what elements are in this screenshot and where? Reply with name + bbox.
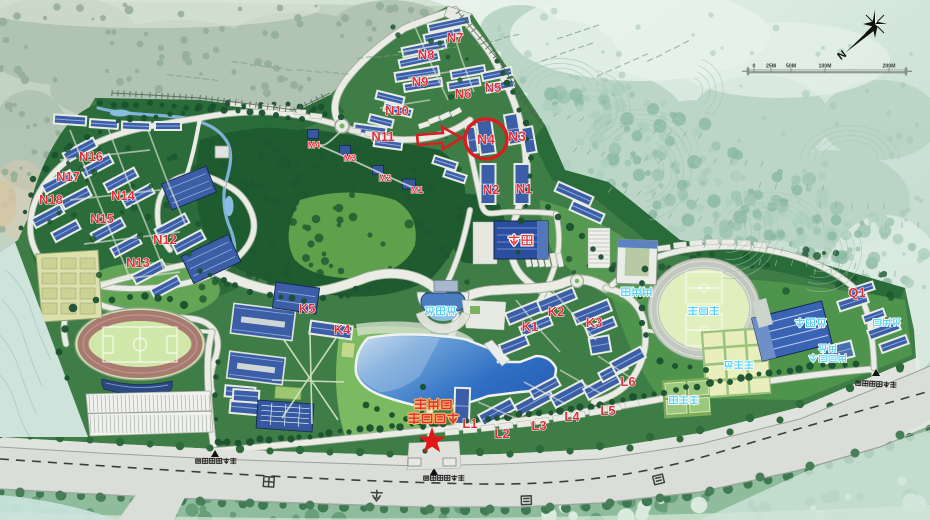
svg-text:L4: L4 (564, 409, 580, 424)
svg-text:N18: N18 (39, 192, 63, 207)
svg-text:K1: K1 (522, 319, 539, 334)
svg-text:N5: N5 (485, 80, 502, 95)
svg-text:N9: N9 (412, 74, 429, 89)
svg-text:K5: K5 (299, 301, 316, 316)
svg-text:N11: N11 (371, 129, 394, 144)
svg-text:N16: N16 (79, 149, 103, 164)
svg-text:N8: N8 (418, 47, 435, 62)
svg-text:M4: M4 (308, 140, 321, 150)
svg-text:L6: L6 (620, 374, 635, 389)
svg-text:L5: L5 (600, 403, 615, 418)
svg-text:K3: K3 (586, 315, 603, 330)
svg-text:N2: N2 (483, 182, 500, 197)
svg-text:N7: N7 (447, 30, 464, 45)
svg-text:N13: N13 (126, 255, 150, 270)
svg-text:N1: N1 (516, 181, 533, 196)
svg-text:N3: N3 (508, 128, 526, 144)
svg-text:N4: N4 (477, 131, 495, 147)
svg-text:L3: L3 (531, 418, 546, 433)
svg-text:M1: M1 (411, 185, 424, 195)
svg-text:M2: M2 (379, 173, 392, 183)
svg-text:Q1: Q1 (848, 285, 865, 300)
svg-text:L2: L2 (494, 426, 509, 441)
svg-text:K4: K4 (334, 322, 351, 337)
svg-text:N10: N10 (385, 103, 409, 118)
svg-text:K2: K2 (548, 304, 565, 319)
svg-text:N17: N17 (56, 169, 80, 184)
svg-text:N14: N14 (111, 188, 136, 203)
svg-text:L1: L1 (462, 416, 477, 431)
svg-text:M3: M3 (344, 153, 357, 163)
svg-text:N15: N15 (90, 211, 114, 226)
svg-text:N6: N6 (455, 86, 472, 101)
svg-text:N12: N12 (153, 232, 177, 247)
